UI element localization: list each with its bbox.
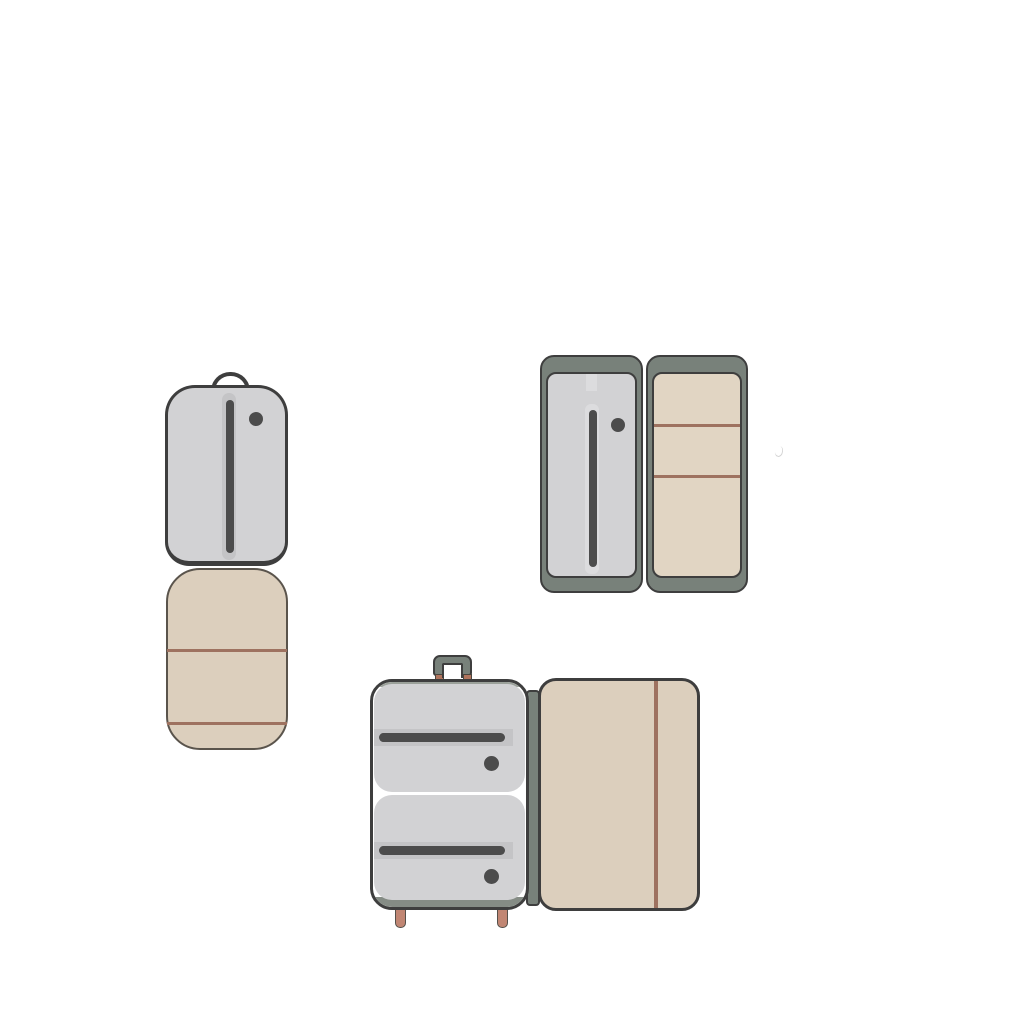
zipper-track-icon	[379, 733, 505, 742]
rolling-suitcase	[370, 653, 710, 930]
left-half-shell	[370, 679, 529, 910]
stitch-seam	[167, 722, 287, 725]
handle-grip-gap	[442, 663, 463, 678]
zipper-pull-dot-icon	[484, 756, 499, 771]
stitch-seam	[654, 424, 740, 427]
zipper-pull-dot-icon	[249, 412, 263, 426]
illustration-canvas	[0, 0, 1024, 1024]
stitch-seam	[654, 681, 658, 908]
stitch-seam	[167, 649, 287, 652]
zipper-notch	[586, 374, 597, 391]
stitch-seam	[654, 475, 740, 478]
zipper-pull-dot-icon	[484, 869, 499, 884]
case-foot-icon	[497, 908, 508, 928]
zipper-track-icon	[379, 846, 505, 855]
stray-mark	[774, 445, 784, 457]
case-foot-icon	[395, 908, 406, 928]
garment-bag	[165, 368, 291, 752]
zipper-track-icon	[589, 410, 597, 567]
book-opened-suitcase	[540, 355, 750, 595]
zipper-pull-dot-icon	[611, 418, 625, 432]
right-half-lining	[538, 678, 700, 911]
zipper-track-icon	[226, 400, 234, 553]
